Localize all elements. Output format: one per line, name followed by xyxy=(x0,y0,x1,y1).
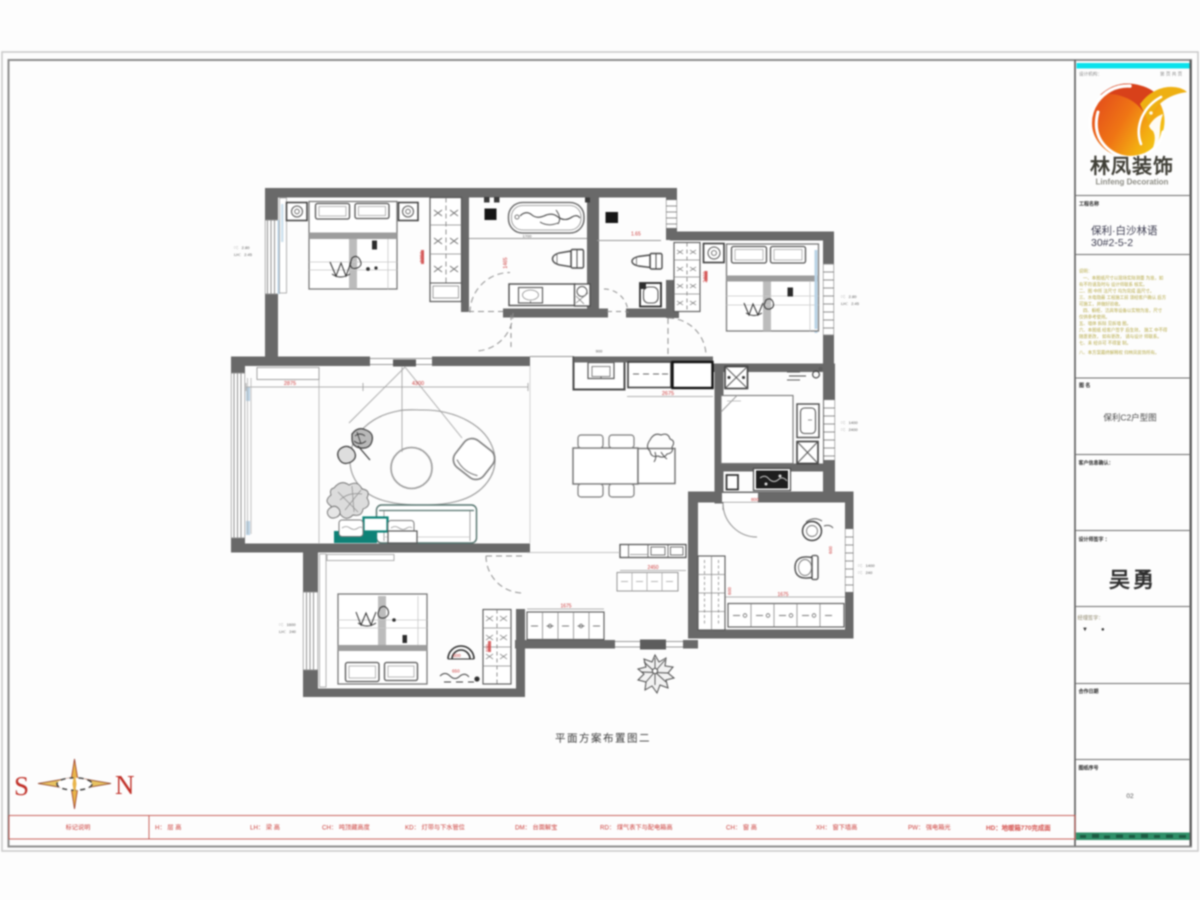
svg-text:平面方案布置图二: 平面方案布置图二 xyxy=(555,732,651,745)
svg-text:HD：地暖箱770完成面: HD：地暖箱770完成面 xyxy=(986,823,1051,832)
svg-text:2875: 2875 xyxy=(284,381,296,387)
svg-text:说明：: 说明： xyxy=(1079,268,1092,275)
svg-text:设计机构：: 设计机构： xyxy=(1079,71,1102,78)
svg-text:客户信息确认：: 客户信息确认： xyxy=(1078,460,1114,467)
svg-text:Linfeng Decoration: Linfeng Decoration xyxy=(1096,178,1169,187)
svg-text:八、本方案最终解释权 归林凤装饰所有。: 八、本方案最终解释权 归林凤装饰所有。 xyxy=(1079,349,1159,356)
svg-text:图纸序号: 图纸序号 xyxy=(1079,765,1099,772)
svg-text:∷： 240: ∷： 240 xyxy=(858,570,873,575)
svg-text:1465: 1465 xyxy=(503,257,509,268)
svg-text:1700: 1700 xyxy=(523,234,533,239)
svg-text:XH： 窗下墙高: XH： 窗下墙高 xyxy=(816,824,857,832)
svg-text:图 名: 图 名 xyxy=(1079,382,1090,389)
svg-text:五、墙体 拆除 见拆墙 图。: 五、墙体 拆除 见拆墙 图。 xyxy=(1079,320,1131,327)
svg-text:保利·白沙林语: 保利·白沙林语 xyxy=(1091,224,1158,237)
svg-text:四、橱柜、洁具等设备以实物为准，尺寸: 四、橱柜、洁具等设备以实物为准，尺寸 xyxy=(1083,307,1163,314)
svg-text:LH： 2.45: LH： 2.45 xyxy=(234,252,253,257)
svg-text:保利C2户型图: 保利C2户型图 xyxy=(1103,413,1156,423)
svg-text:经理签字：: 经理签字： xyxy=(1078,614,1104,622)
svg-text:2675: 2675 xyxy=(662,391,674,397)
svg-text:CH： 吨顶藏高度: CH： 吨顶藏高度 xyxy=(322,824,370,832)
svg-text:02: 02 xyxy=(1126,793,1134,800)
svg-text:600: 600 xyxy=(453,653,461,658)
svg-text:吴勇: 吴勇 xyxy=(1109,569,1157,592)
svg-text:标记说明: 标记说明 xyxy=(66,824,91,832)
svg-text:600: 600 xyxy=(828,546,833,554)
svg-text:1.65: 1.65 xyxy=(631,232,641,238)
svg-text:可施工，并做好验收。: 可施工，并做好验收。 xyxy=(1079,301,1123,308)
svg-text:N: N xyxy=(115,770,135,800)
svg-text:2450: 2450 xyxy=(647,565,658,571)
svg-text:PW： 强电箱光: PW： 强电箱光 xyxy=(908,824,951,832)
svg-text:RD： 煤气表下与配电箱高: RD： 煤气表下与配电箱高 xyxy=(600,824,673,832)
svg-text:600: 600 xyxy=(727,587,732,595)
svg-text:LH： 梁 高: LH： 梁 高 xyxy=(250,824,280,832)
svg-text:一、本图纸尺寸以现场实际测量 为准，如: 一、本图纸尺寸以现场实际测量 为准，如 xyxy=(1083,275,1164,282)
svg-text:DM： 台面解宝: DM： 台面解宝 xyxy=(515,824,557,832)
svg-text:六、本图纸 经客户签字 后生效， 施工 中不得: 六、本图纸 经客户签字 后生效， 施工 中不得 xyxy=(1079,327,1168,334)
svg-text:4300: 4300 xyxy=(412,381,424,387)
svg-text:合作日期: 合作日期 xyxy=(1078,688,1099,695)
svg-text:LH： 240: LH： 240 xyxy=(279,629,297,634)
svg-text:三、水电隐蔽 工程施工前 须经客户确认 后方: 三、水电隐蔽 工程施工前 须经客户确认 后方 xyxy=(1079,294,1167,301)
svg-text:900: 900 xyxy=(596,349,603,354)
svg-text:∷： 2.80: ∷： 2.80 xyxy=(841,294,857,299)
svg-text:∷： 1600: ∷： 1600 xyxy=(279,622,296,627)
svg-text:1675: 1675 xyxy=(560,604,571,610)
svg-text:有不符请及时与 设计师联系 核实。: 有不符请及时与 设计师联系 核实。 xyxy=(1079,281,1147,288)
svg-text:CH： 窗 高: CH： 窗 高 xyxy=(726,824,757,832)
svg-text:∷： 2400: ∷： 2400 xyxy=(841,427,858,432)
svg-text:800: 800 xyxy=(751,497,759,502)
svg-text:●: ● xyxy=(1101,627,1105,633)
svg-text:▼: ▼ xyxy=(1082,627,1088,633)
svg-text:第 页 共 页: 第 页 共 页 xyxy=(1160,71,1183,78)
svg-text:∷： 1400: ∷： 1400 xyxy=(841,420,858,425)
svg-text:650: 650 xyxy=(452,669,460,674)
svg-text:∷： 2.80: ∷： 2.80 xyxy=(234,245,250,250)
svg-text:30#2-5-2: 30#2-5-2 xyxy=(1091,237,1133,249)
svg-text:随意更改， 如有更改， 请与设计 师联系。: 随意更改， 如有更改， 请与设计 师联系。 xyxy=(1079,333,1162,340)
svg-text:仅供参考使用。: 仅供参考使用。 xyxy=(1079,314,1110,321)
svg-text:设计师签字 ：: 设计师签字 ： xyxy=(1079,536,1110,543)
svg-text:H： 层 高: H： 层 高 xyxy=(155,824,181,832)
svg-text:1675: 1675 xyxy=(777,592,788,598)
svg-text:S: S xyxy=(14,771,29,801)
svg-text:工程名称: 工程名称 xyxy=(1079,201,1099,208)
svg-text:林凤装饰: 林凤装饰 xyxy=(1090,154,1174,178)
svg-text:LH： 2.45: LH： 2.45 xyxy=(841,301,860,306)
svg-text:二、图 中所 注尺寸 均为完成 面尺寸。: 二、图 中所 注尺寸 均为完成 面尺寸。 xyxy=(1079,288,1154,295)
svg-text:七、未 经许可 不得复 制。: 七、未 经许可 不得复 制。 xyxy=(1079,340,1131,347)
svg-text:∷： 1400: ∷： 1400 xyxy=(858,563,875,568)
svg-text:KD： 灯带与下水管位: KD： 灯带与下水管位 xyxy=(405,824,465,832)
